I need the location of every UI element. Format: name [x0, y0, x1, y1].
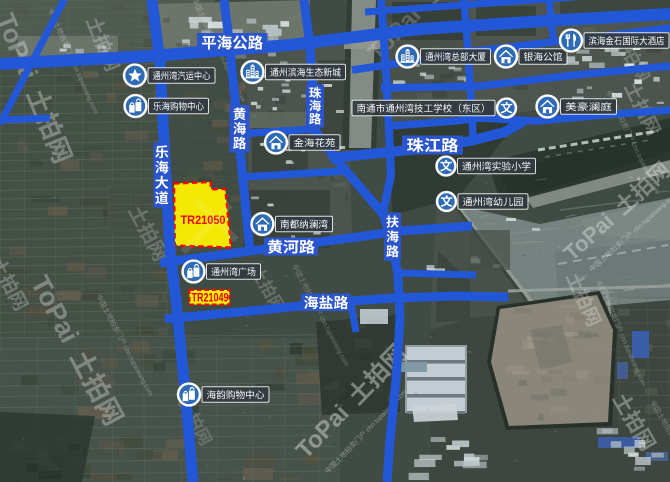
svg-text:TR21049: TR21049	[192, 291, 229, 305]
